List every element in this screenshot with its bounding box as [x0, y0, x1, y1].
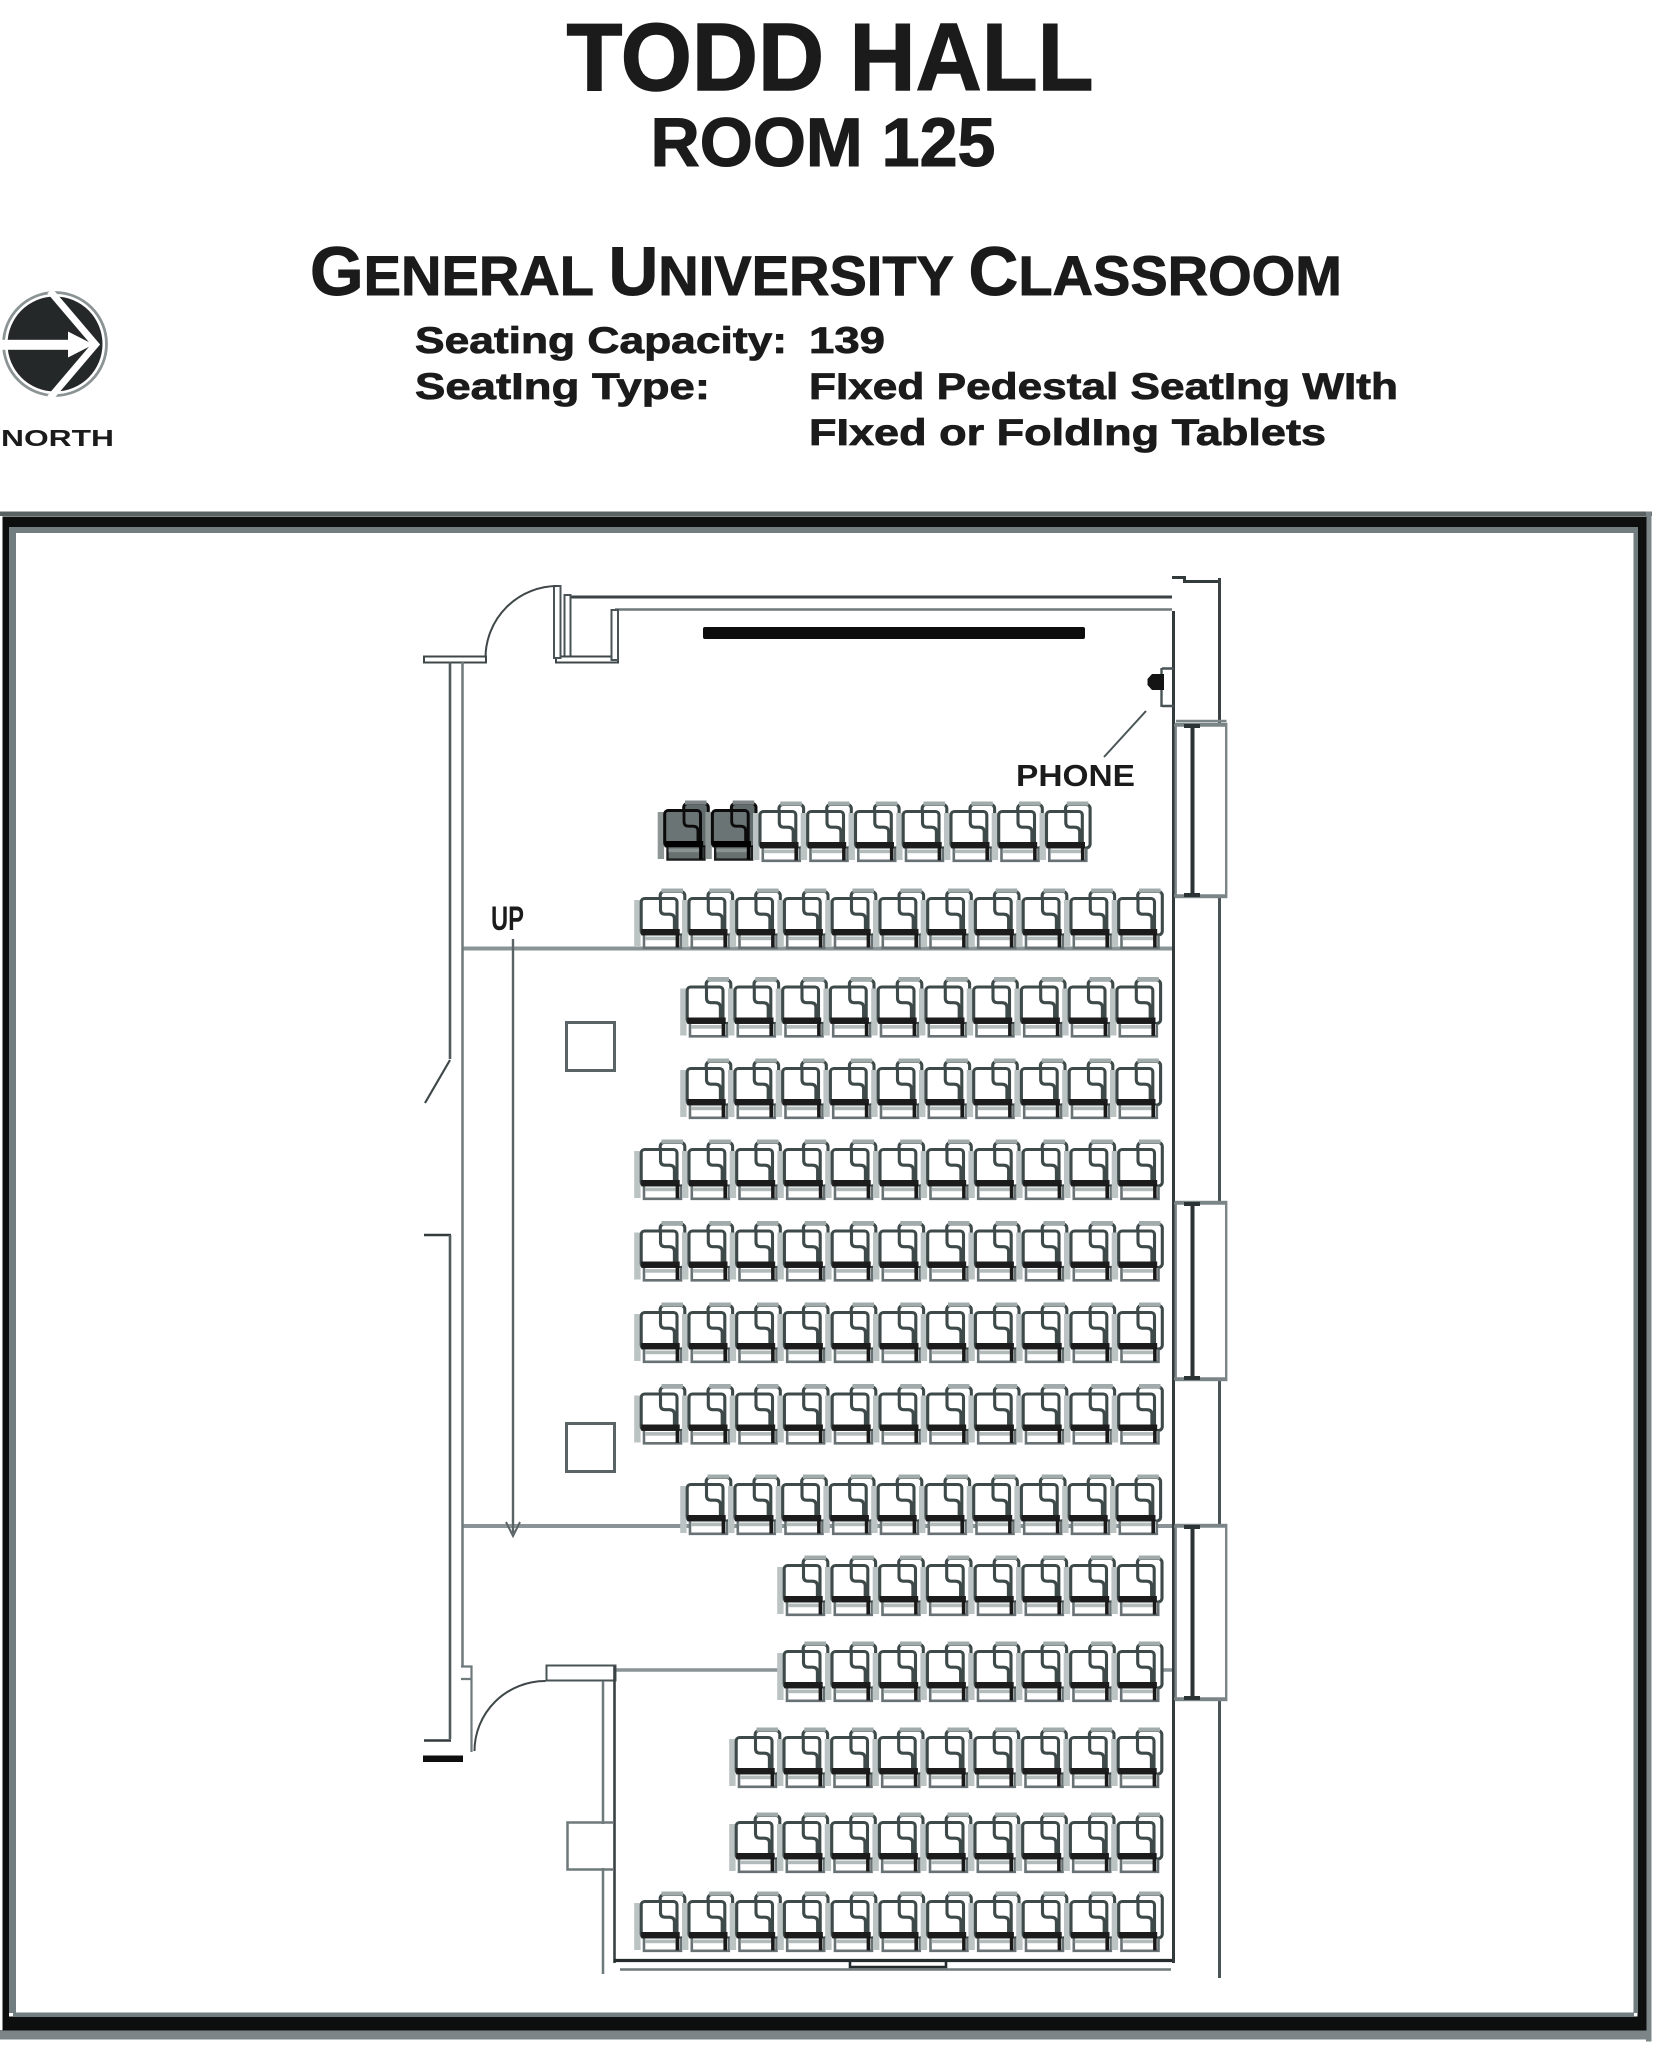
svg-text:TODD HALL: TODD HALL	[567, 4, 1094, 111]
svg-text:FIxed Pedestal SeatIng WIth: FIxed Pedestal SeatIng WIth	[809, 365, 1398, 407]
svg-text:SeatIng Type:: SeatIng Type:	[415, 365, 710, 407]
svg-text:ROOM 125: ROOM 125	[651, 104, 996, 181]
svg-text:FIxed or FoldIng Tablets: FIxed or FoldIng Tablets	[809, 411, 1326, 453]
svg-text:NORTH: NORTH	[1, 425, 114, 451]
svg-text:UP: UP	[491, 900, 524, 938]
svg-text:139: 139	[809, 319, 885, 361]
svg-text:PHONE: PHONE	[1016, 758, 1135, 793]
svg-text:Seating Capacity:: Seating Capacity:	[415, 319, 787, 361]
svg-text:GENERAL UNIVERSITY CLASSROOM: GENERAL UNIVERSITY CLASSROOM	[310, 233, 1342, 310]
